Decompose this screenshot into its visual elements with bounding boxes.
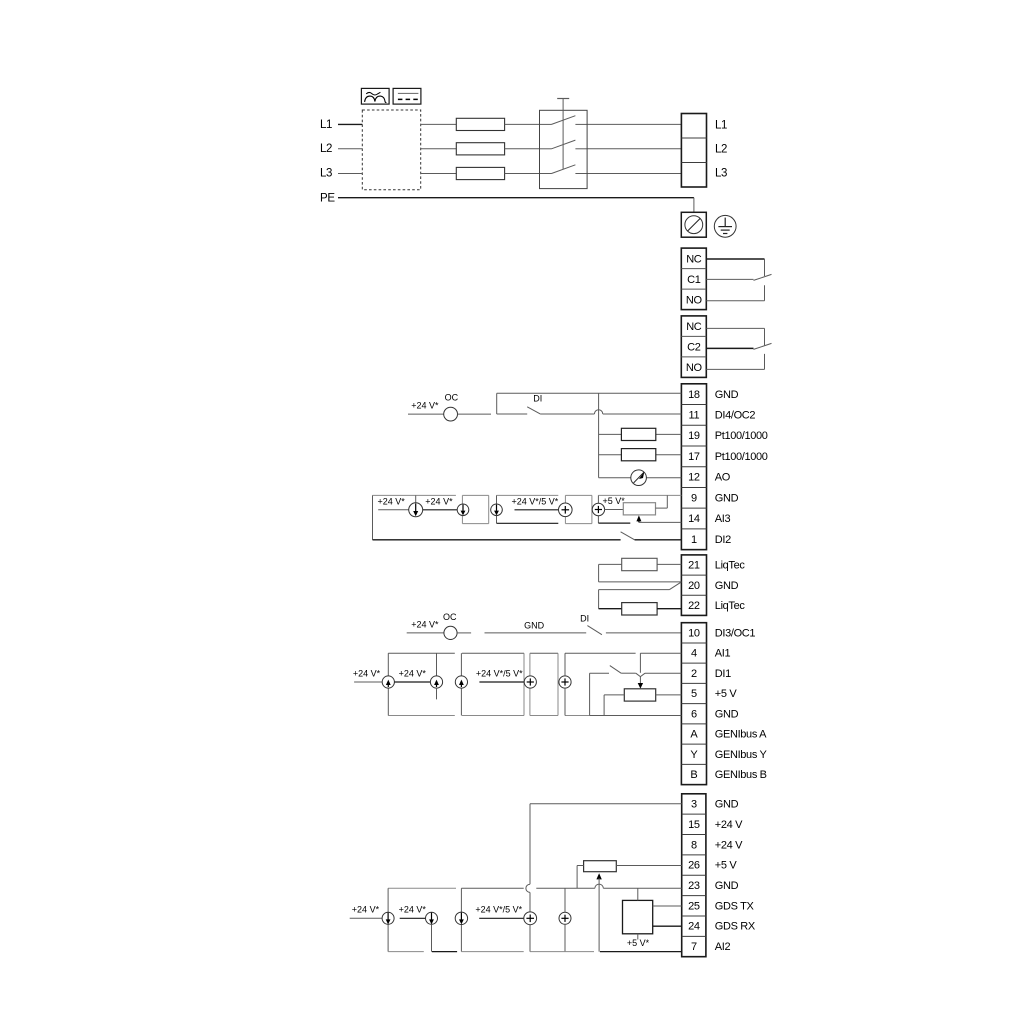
svg-text:C1: C1 [687,274,701,286]
svg-text:A: A [690,729,698,741]
svg-text:4: 4 [691,648,697,660]
svg-text:22: 22 [688,600,700,612]
svg-text:1: 1 [691,534,697,546]
svg-text:DI: DI [580,613,589,623]
svg-text:LiqTec: LiqTec [715,600,746,612]
svg-text:L2: L2 [715,143,727,155]
svg-text:LiqTec: LiqTec [715,560,746,572]
svg-text:+5 V: +5 V [715,860,738,872]
svg-text:8: 8 [691,839,697,851]
svg-text:GND: GND [715,389,739,401]
svg-text:23: 23 [688,880,700,892]
svg-text:+5 V*: +5 V* [627,938,650,948]
svg-text:AI1: AI1 [715,648,731,660]
svg-text:25: 25 [688,900,700,912]
svg-text:PE: PE [320,192,335,204]
svg-text:GND: GND [524,620,545,630]
svg-text:18: 18 [688,389,700,401]
svg-text:10: 10 [688,627,700,639]
svg-text:GENIbus B: GENIbus B [715,769,767,781]
svg-text:GDS RX: GDS RX [715,921,756,933]
svg-text:+24 V: +24 V [715,819,743,831]
svg-text:OC: OC [445,392,459,402]
svg-text:14: 14 [688,513,700,525]
svg-text:GND: GND [715,708,739,720]
svg-text:DI4/OC2: DI4/OC2 [715,409,756,421]
svg-text:6: 6 [691,708,697,720]
svg-text:L1: L1 [320,119,332,131]
svg-text:DI3/OC1: DI3/OC1 [715,627,756,639]
svg-text:GND: GND [715,580,739,592]
svg-text:AI3: AI3 [715,513,731,525]
svg-text:11: 11 [689,409,700,421]
svg-text:NC: NC [686,321,702,333]
svg-text:7: 7 [691,941,697,953]
svg-text:+24 V*: +24 V* [352,905,380,915]
svg-text:Pt100/1000: Pt100/1000 [715,451,768,463]
svg-text:+24 V*: +24 V* [399,905,427,915]
svg-text:15: 15 [688,819,700,831]
svg-text:DI: DI [533,394,542,404]
svg-text:+24 V*: +24 V* [399,668,427,678]
svg-text:L1: L1 [715,119,727,131]
svg-text:24: 24 [688,921,700,933]
svg-text:5: 5 [691,688,697,700]
svg-text:21: 21 [688,560,700,572]
svg-text:+24 V*: +24 V* [411,620,439,630]
svg-text:+24 V: +24 V [715,839,743,851]
svg-text:GDS TX: GDS TX [715,900,755,912]
svg-text:GENIbus Y: GENIbus Y [715,749,768,761]
svg-text:NO: NO [686,294,703,306]
svg-text:AO: AO [715,472,731,484]
svg-text:B: B [690,769,697,781]
svg-text:OC: OC [443,612,457,622]
svg-text:9: 9 [691,492,697,504]
svg-text:L3: L3 [320,168,332,180]
svg-text:+24 V*: +24 V* [411,400,439,410]
svg-text:17: 17 [688,451,700,463]
svg-text:+24 V*/5 V*: +24 V*/5 V* [512,496,559,506]
svg-text:3: 3 [691,799,697,811]
svg-text:L3: L3 [715,167,727,179]
svg-text:L2: L2 [320,143,332,155]
svg-text:Y: Y [690,749,698,761]
svg-text:26: 26 [688,860,700,872]
svg-text:GND: GND [715,799,739,811]
svg-text:+24 V*: +24 V* [378,497,406,507]
svg-text:+5 V*: +5 V* [603,496,626,506]
svg-text:+24 V*: +24 V* [425,497,453,507]
svg-text:NO: NO [686,362,703,374]
svg-text:+24 V*: +24 V* [353,668,381,678]
svg-text:+24 V*/5 V*: +24 V*/5 V* [475,905,522,915]
svg-text:GND: GND [715,492,739,504]
svg-text:+5 V: +5 V [715,688,738,700]
svg-text:Pt100/1000: Pt100/1000 [715,430,768,442]
svg-text:DI2: DI2 [715,534,731,546]
svg-text:2: 2 [691,668,697,680]
svg-text:+24 V*/5 V*: +24 V*/5 V* [476,669,523,679]
svg-text:19: 19 [688,430,700,442]
svg-text:DI1: DI1 [715,668,731,680]
svg-text:GND: GND [715,880,739,892]
svg-text:AI2: AI2 [715,941,731,953]
svg-text:GENIbus A: GENIbus A [715,729,767,741]
svg-text:C2: C2 [687,342,701,354]
svg-text:12: 12 [688,472,700,484]
svg-text:20: 20 [688,580,700,592]
svg-text:NC: NC [686,253,702,265]
